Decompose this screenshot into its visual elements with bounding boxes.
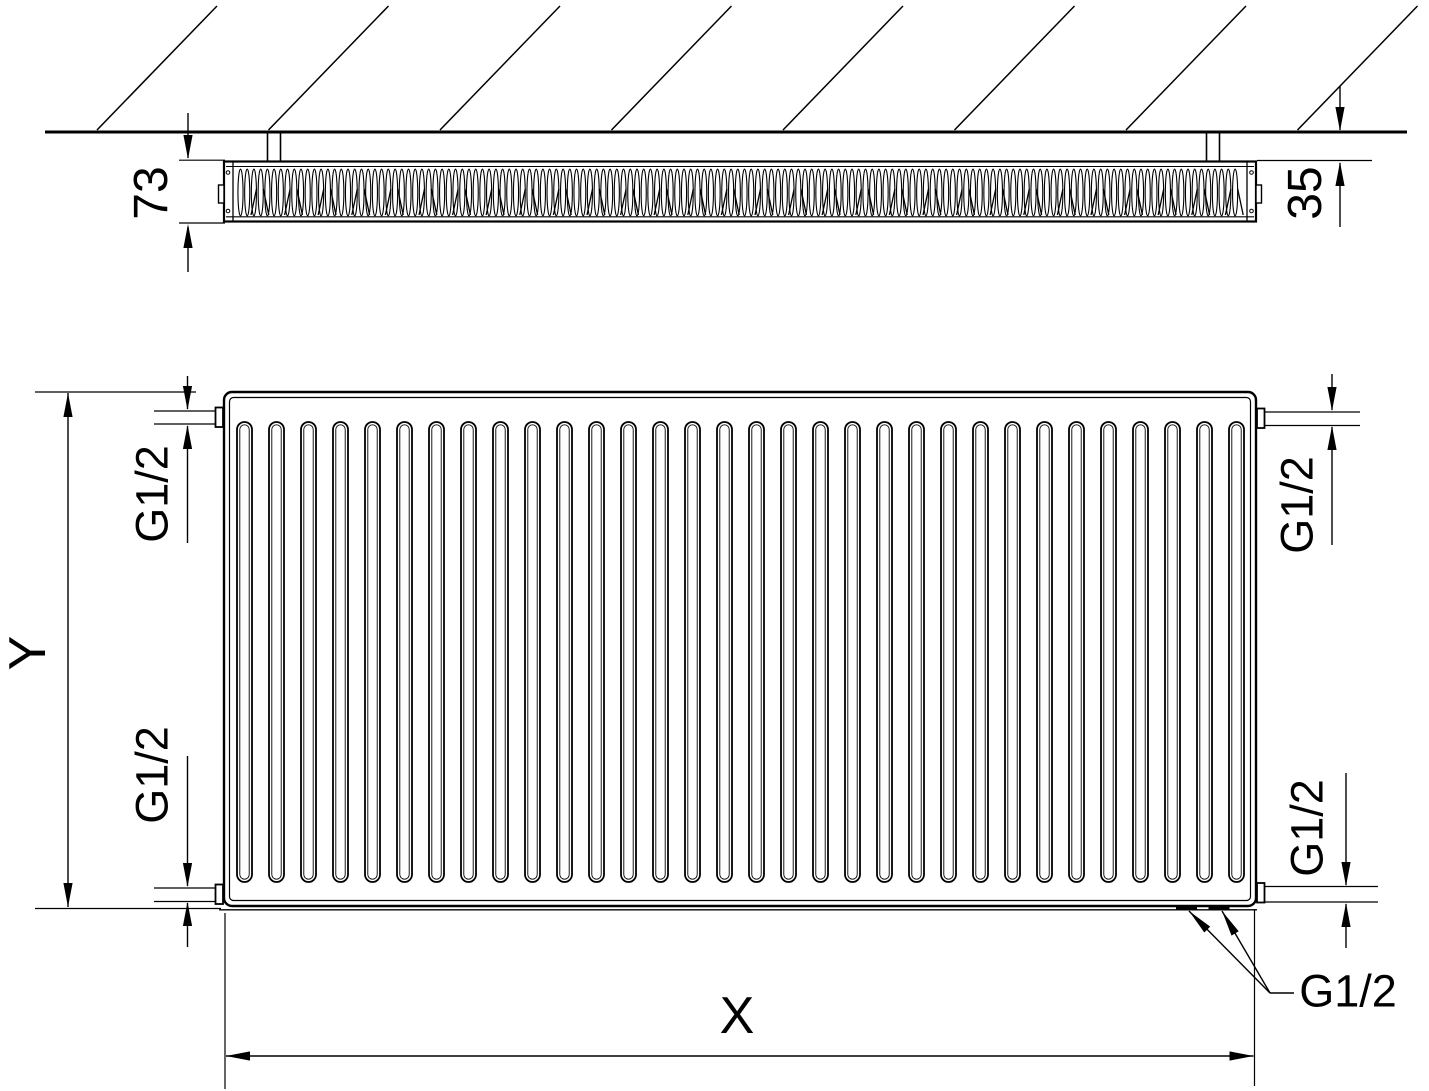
front-view-radiator (219, 392, 1257, 910)
height-dimension-label: Y (2, 636, 54, 671)
g12-bottom-leader-label: G1/2 (1299, 969, 1397, 1014)
left-side-plug (219, 185, 225, 203)
g12-bottom-left-label: G1/2 (130, 726, 175, 824)
bottom-port-left (1176, 906, 1197, 911)
wall-hatching (97, 6, 1418, 130)
radiator-technical-drawing: 73 35 Y X G1/2 G1/2 G1/2 G1/2 G1/2 (0, 0, 1429, 1091)
g12-top-left-label: G1/2 (130, 445, 175, 543)
right-side-plug (1256, 185, 1262, 203)
width-dimension-label: X (720, 990, 755, 1042)
top-view-radiator (219, 162, 1262, 222)
drawing-linework (0, 0, 1429, 1091)
g12-top-right-label: G1/2 (1275, 456, 1320, 554)
wall-brackets (268, 133, 1220, 161)
depth-dimension-label: 73 (128, 166, 176, 219)
g12-bottom-right-label: G1/2 (1285, 779, 1330, 877)
wall-distance-dimension-label: 35 (1282, 166, 1330, 219)
bottom-port-right (1209, 906, 1230, 911)
